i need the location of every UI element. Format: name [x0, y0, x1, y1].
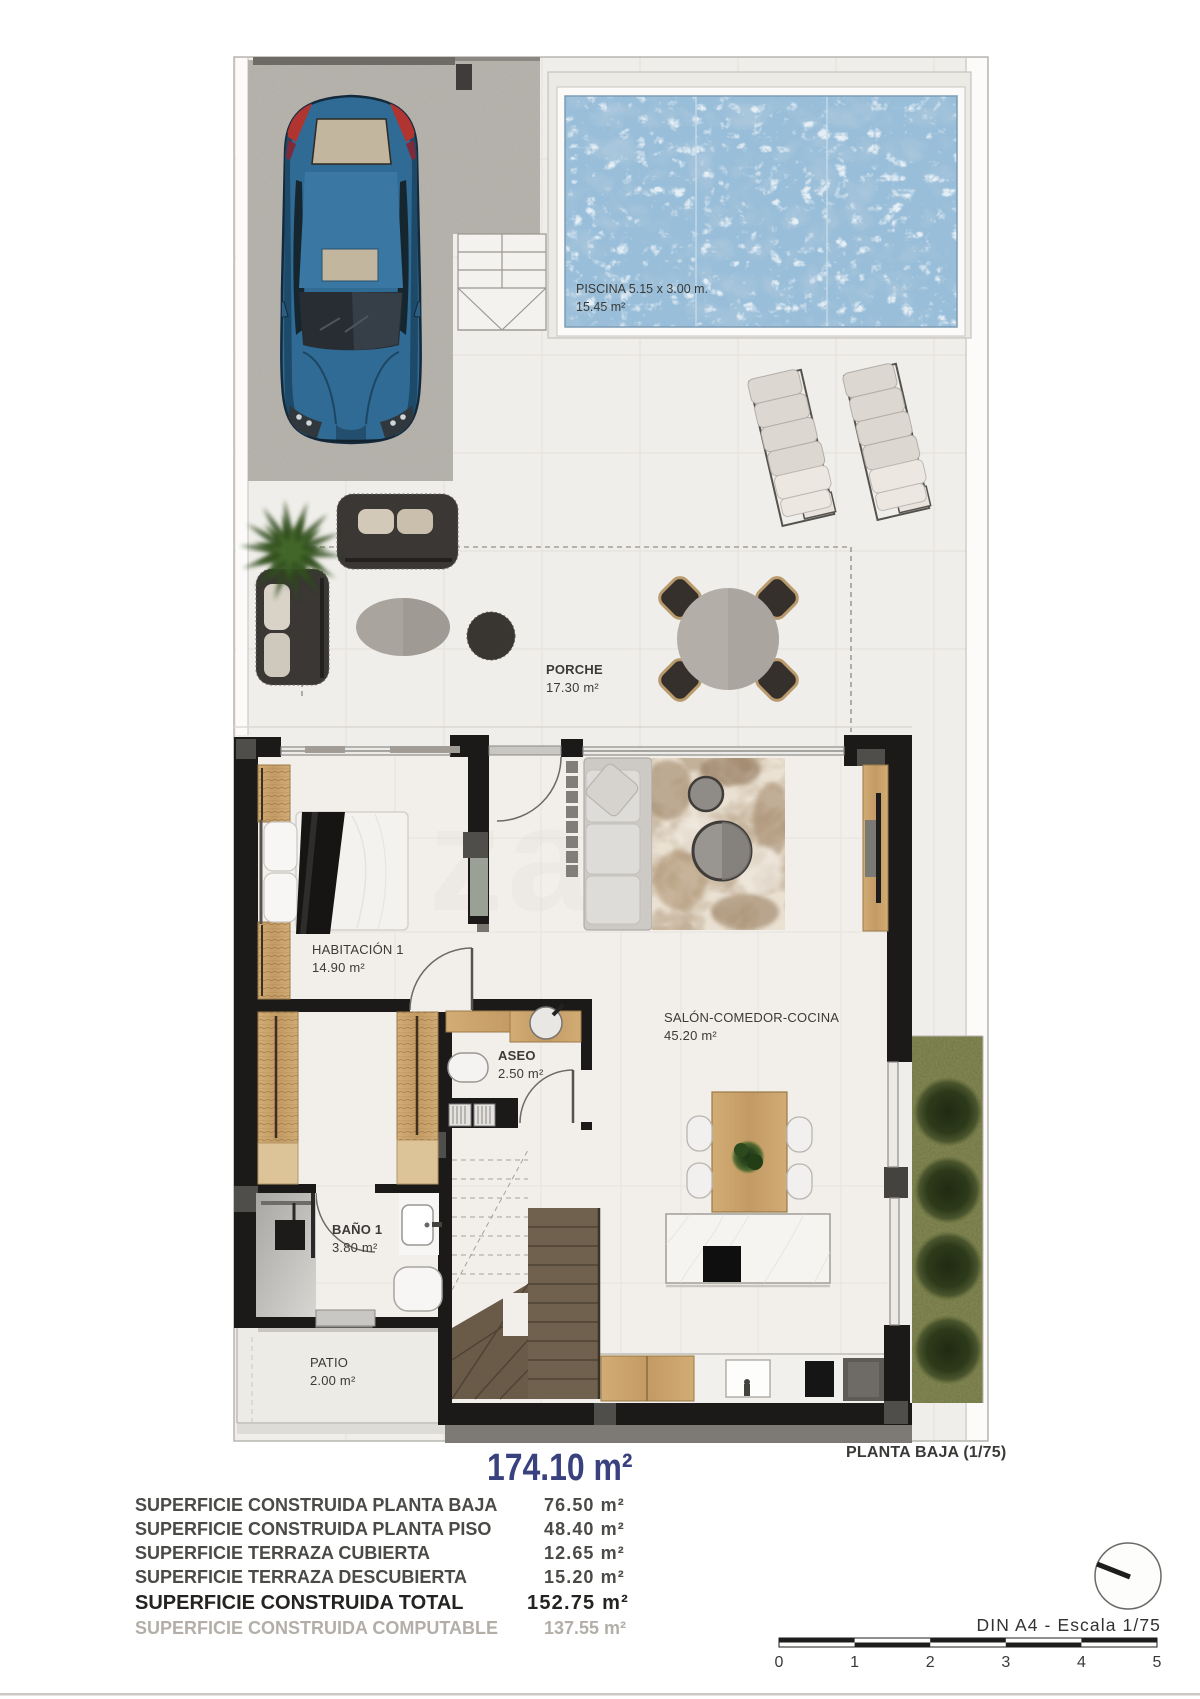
svg-text:SALÓN-COMEDOR-COCINA: SALÓN-COMEDOR-COCINA: [664, 1010, 839, 1025]
svg-text:SUPERFICIE CONSTRUIDA TOTAL: SUPERFICIE CONSTRUIDA TOTAL: [135, 1592, 464, 1614]
svg-text:SUPERFICIE TERRAZA DESCUBIERTA: SUPERFICIE TERRAZA DESCUBIERTA: [135, 1567, 467, 1587]
svg-text:15.45 m²: 15.45 m²: [576, 300, 625, 314]
svg-text:3.80 m²: 3.80 m²: [332, 1240, 378, 1255]
svg-text:SUPERFICIE CONSTRUIDA COMPUTAB: SUPERFICIE CONSTRUIDA COMPUTABLE: [135, 1618, 498, 1638]
svg-text:2.00 m²: 2.00 m²: [310, 1373, 356, 1388]
svg-text:137.55 m²: 137.55 m²: [544, 1618, 626, 1638]
svg-text:PISCINA 5.15 x 3.00 m.: PISCINA 5.15 x 3.00 m.: [576, 282, 708, 296]
svg-text:17.30 m²: 17.30 m²: [546, 680, 599, 695]
svg-text:2: 2: [926, 1654, 935, 1671]
svg-text:SUPERFICIE CONSTRUIDA PLANTA B: SUPERFICIE CONSTRUIDA PLANTA BAJA: [135, 1495, 497, 1515]
svg-text:DIN A4 - Escala 1/75: DIN A4 - Escala 1/75: [977, 1615, 1161, 1635]
svg-text:0: 0: [775, 1654, 784, 1671]
svg-text:PORCHE: PORCHE: [546, 662, 603, 677]
svg-text:152.75 m²: 152.75 m²: [527, 1592, 629, 1614]
svg-text:SUPERFICIE TERRAZA CUBIERTA: SUPERFICIE TERRAZA CUBIERTA: [135, 1543, 430, 1563]
svg-text:HABITACIÓN 1: HABITACIÓN 1: [312, 942, 404, 957]
svg-text:PLANTA BAJA (1/75): PLANTA BAJA (1/75): [846, 1444, 1006, 1461]
svg-text:1: 1: [850, 1654, 859, 1671]
svg-text:12.65 m²: 12.65 m²: [544, 1543, 625, 1563]
svg-text:ASEO: ASEO: [498, 1048, 536, 1063]
svg-text:15.20 m²: 15.20 m²: [544, 1567, 625, 1587]
svg-text:174.10 m²: 174.10 m²: [487, 1446, 632, 1488]
svg-text:4: 4: [1077, 1654, 1086, 1671]
svg-text:3: 3: [1001, 1654, 1010, 1671]
svg-text:48.40 m²: 48.40 m²: [544, 1519, 625, 1539]
svg-text:2.50 m²: 2.50 m²: [498, 1066, 544, 1081]
svg-text:BAÑO 1: BAÑO 1: [332, 1222, 382, 1237]
svg-text:SUPERFICIE CONSTRUIDA PLANTA P: SUPERFICIE CONSTRUIDA PLANTA PISO: [135, 1519, 491, 1539]
svg-text:14.90 m²: 14.90 m²: [312, 960, 365, 975]
svg-text:76.50 m²: 76.50 m²: [544, 1495, 625, 1515]
svg-text:PATIO: PATIO: [310, 1355, 348, 1370]
svg-text:45.20 m²: 45.20 m²: [664, 1028, 717, 1043]
svg-text:5: 5: [1153, 1654, 1162, 1671]
